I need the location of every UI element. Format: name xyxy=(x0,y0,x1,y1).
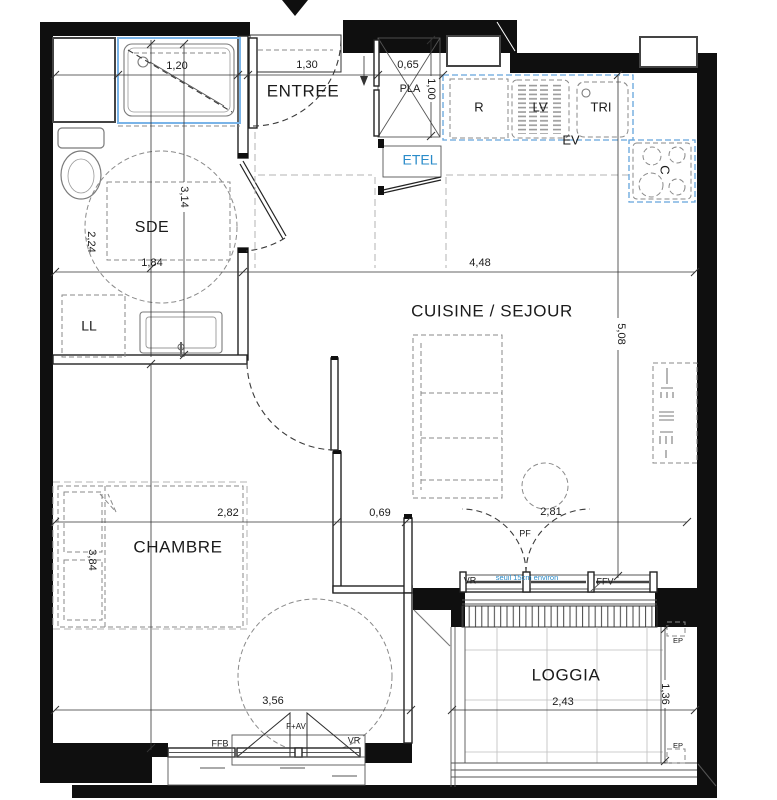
fixture-label-hob: C xyxy=(658,165,673,174)
room-label-cuisine-sejour: CUISINE / SEJOUR xyxy=(411,301,573,320)
dim-label-pla-width: 0,65 xyxy=(397,59,418,71)
wall-left xyxy=(40,22,53,748)
fixture-label-sink: EV xyxy=(562,132,580,147)
window-fav-center-post xyxy=(295,748,302,757)
pla-sliding-panel xyxy=(374,40,379,86)
sofa-cushions xyxy=(421,343,502,490)
dim-label-sde-depth: 2,24 xyxy=(85,231,97,252)
table-circle xyxy=(522,463,568,509)
pla-sliding-panel xyxy=(374,90,379,136)
chambre-door-hinge xyxy=(331,356,338,360)
shower-drain xyxy=(138,57,148,67)
shower-tray-inner xyxy=(128,48,230,112)
interior-walls xyxy=(53,36,412,743)
ep-duct-bottom xyxy=(667,749,685,763)
toilet-tank xyxy=(58,128,104,148)
loggia-window-wall xyxy=(460,509,657,627)
hob-burner xyxy=(669,147,685,163)
entrance-arrow-icon xyxy=(282,0,308,16)
dim-label-chambre-width: 2,82 xyxy=(217,507,238,519)
dim-label-loggia-width: 2,43 xyxy=(552,696,573,708)
sde-door-leaf xyxy=(243,161,286,236)
sofa xyxy=(413,335,502,498)
dim-label-loggia-depth: 1,36 xyxy=(659,683,671,704)
wall-cap xyxy=(404,514,412,519)
wall-niche-east xyxy=(404,518,412,593)
wall-cap xyxy=(378,139,384,148)
window-post xyxy=(650,572,657,592)
opening-label-seuil: seuil 15cm environ xyxy=(496,573,559,582)
pier-loggia-right xyxy=(655,588,697,627)
sde-door-swing xyxy=(246,238,285,251)
fixture-label-pla: PLA xyxy=(400,83,421,95)
loggia-grating xyxy=(462,606,657,627)
wall-sde-south xyxy=(53,355,247,364)
opening-label-vr-loggia: VR xyxy=(464,575,477,585)
wall-sde-entree-lower xyxy=(238,248,248,360)
shower-tray xyxy=(124,44,234,116)
sde-duct-box xyxy=(53,38,115,122)
corner-miter-line xyxy=(414,610,450,646)
dim-label-sde-width: 1,84 xyxy=(141,257,162,269)
balcony-slab-marks xyxy=(200,768,357,776)
opening-label-pf: PF xyxy=(519,528,531,538)
labels: ENTREE SDE CUISINE / SEJOUR CHAMBRE LOGG… xyxy=(81,59,683,750)
chambre-door-leaf xyxy=(331,358,338,450)
sejour-furniture xyxy=(413,335,697,509)
dimension-lines xyxy=(51,36,699,765)
room-label-entree: ENTREE xyxy=(267,81,340,100)
shower xyxy=(118,38,240,123)
hob-burner xyxy=(669,179,685,195)
chambre-door-swing xyxy=(247,363,334,450)
dim-label-sde-height: 3,14 xyxy=(178,186,190,207)
duct-box-top-left xyxy=(447,36,500,66)
duct-box-top-right xyxy=(640,37,697,67)
dim-label-sejour-height: 5,08 xyxy=(615,323,627,344)
wall-niche-south xyxy=(333,586,412,593)
dim-label-sejour-width: 4,48 xyxy=(469,257,490,269)
pf-door-swing-right xyxy=(526,509,590,573)
entrance-door-leaf xyxy=(249,38,257,128)
opening-label-ffb: FFB xyxy=(212,738,229,748)
wall-top-left xyxy=(40,22,250,36)
fixture-label-dishwasher: LV xyxy=(533,99,548,114)
sink-faucet xyxy=(582,89,590,97)
pf-door-swing-left xyxy=(462,509,526,573)
sde-fixtures xyxy=(53,38,240,357)
etel-door-leaf xyxy=(383,177,441,190)
wall-bottom-mid xyxy=(365,743,412,763)
floor-plan: ENTREE SDE CUISINE / SEJOUR CHAMBRE LOGG… xyxy=(0,0,777,800)
chambre-windows xyxy=(168,713,365,785)
etel-door-leaf xyxy=(383,180,441,193)
hob-burner xyxy=(639,173,663,197)
floor-plan-drawing: ENTREE SDE CUISINE / SEJOUR CHAMBRE LOGG… xyxy=(0,0,777,800)
hob-burner xyxy=(643,147,661,165)
opening-label-ep-bottom: EP xyxy=(673,741,683,750)
dim-label-chambre-bottom-width: 3,56 xyxy=(262,695,283,707)
fixture-label-tri: TRI xyxy=(591,99,612,114)
bed xyxy=(58,486,243,627)
fixture-label-washer: LL xyxy=(81,318,97,334)
dim-label-passage-width: 0,69 xyxy=(369,507,390,519)
chambre-turning-circle xyxy=(238,599,392,753)
wall-chambre-east-lower xyxy=(404,593,412,743)
wall-cap xyxy=(238,153,248,158)
balcony-slab xyxy=(168,757,365,785)
toilet-bowl xyxy=(61,151,101,199)
fixture-label-fridge: R xyxy=(474,99,483,114)
dim-label-shower-width: 1,20 xyxy=(166,60,187,72)
wall-right xyxy=(697,53,717,790)
room-label-loggia: LOGGIA xyxy=(532,665,601,684)
chambre-furniture xyxy=(58,486,392,753)
room-label-sde: SDE xyxy=(135,219,169,236)
opening-label-fav: F+AV xyxy=(286,722,306,731)
dim-arrowhead xyxy=(360,76,368,86)
dim-label-sejour-lower-width: 2,81 xyxy=(540,506,561,518)
radiator xyxy=(653,363,697,463)
window-outer-sill xyxy=(462,600,657,604)
opening-label-ffv: FFV xyxy=(597,576,614,586)
dim-label-pla-depth: 1,00 xyxy=(425,78,437,99)
opening-label-ep-top: EP xyxy=(673,636,683,645)
fixture-label-etel: ETEL xyxy=(402,152,437,168)
dim-label-chambre-height: 3,84 xyxy=(86,549,98,570)
loggia-edges xyxy=(451,627,697,787)
wall-bottom-left xyxy=(40,743,168,783)
opening-label-vr-chambre: VR xyxy=(348,735,361,745)
dim-label-entree-width: 1,30 xyxy=(296,59,317,71)
wall-cap xyxy=(378,186,384,195)
facade-band-bottom xyxy=(72,785,717,798)
room-label-chambre: CHAMBRE xyxy=(133,537,222,556)
radiator-symbol xyxy=(659,368,674,458)
